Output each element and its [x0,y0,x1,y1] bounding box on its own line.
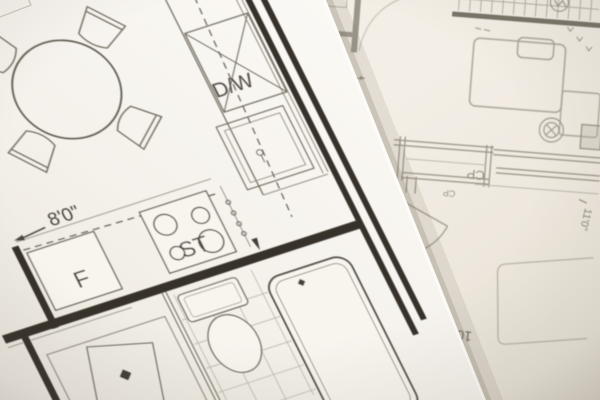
floorplan-photo: 8'0 CP CP 11'0" [0,0,600,400]
floorplan-photo-svg: 8'0 CP CP 11'0" [0,0,600,400]
photo-vignette [0,0,600,400]
